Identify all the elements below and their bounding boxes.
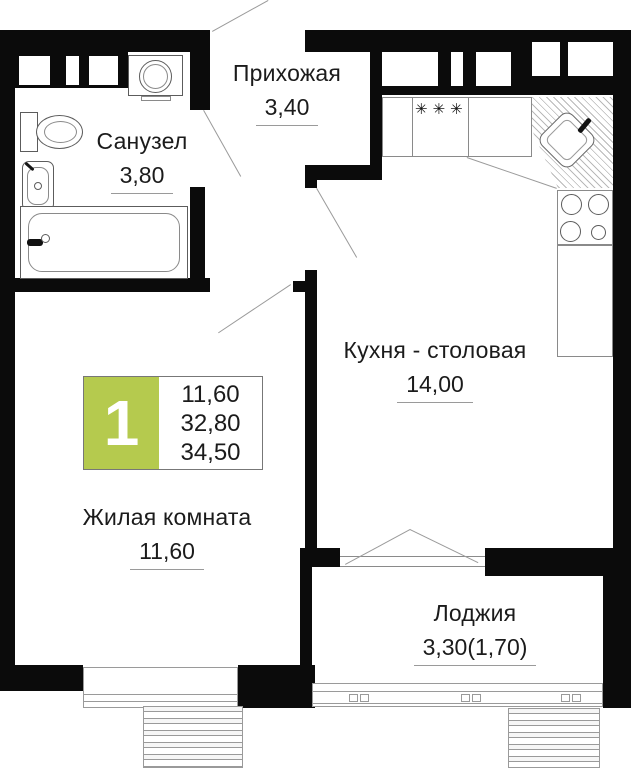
glazing-mullion — [472, 694, 481, 702]
living-room-window — [83, 667, 238, 708]
room-area: 3,80 — [111, 162, 174, 194]
stove-burner — [561, 194, 582, 215]
wall-kitchen-bottom-right — [485, 548, 603, 576]
facade-panel — [508, 708, 600, 768]
room-name: Жилая комната — [83, 504, 252, 531]
room-label-hallway: Прихожая 3,40 — [207, 60, 367, 126]
living-area-value: 11,60 — [181, 380, 239, 409]
glazing-mullion — [572, 694, 581, 702]
glazing-mullion — [360, 694, 369, 702]
glazing-line — [313, 703, 602, 704]
glazing-mullion — [349, 694, 358, 702]
glazing-line — [313, 691, 602, 692]
wall-top-hallway — [305, 30, 370, 52]
shaft-opening — [382, 52, 438, 86]
balcony-door-sill — [340, 556, 485, 567]
wall-living-kitchen — [305, 270, 317, 548]
room-label-bathroom: Санузел 3,80 — [62, 128, 222, 194]
wall-right-loggia — [603, 548, 631, 708]
apartment-badge: 1 11,60 32,80 34,50 — [83, 376, 263, 470]
room-area: 11,60 — [130, 538, 204, 570]
room-name: Кухня - столовая — [344, 337, 527, 364]
room-area: 3,40 — [256, 94, 319, 126]
entrance-door-swing — [212, 0, 268, 32]
wall-right — [613, 30, 631, 550]
stove-burner — [560, 221, 581, 242]
loggia-glazing — [312, 683, 603, 707]
glazing-mullion — [561, 694, 570, 702]
room-label-loggia: Лоджия 3,30(1,70) — [365, 600, 585, 666]
living-door-swing — [218, 284, 291, 333]
rooms-count: 1 — [84, 377, 159, 469]
wall-living-bottom-left — [0, 665, 83, 691]
wall-hallway-kitchen-corner — [305, 165, 382, 180]
room-name: Лоджия — [434, 600, 517, 627]
wall-stub-living-door — [293, 281, 305, 292]
wall-living-bottom-right — [238, 665, 315, 708]
shaft-opening — [66, 56, 79, 85]
kitchen-counter-right — [557, 245, 613, 357]
total-area-value: 34,50 — [180, 438, 240, 467]
shaft-opening — [19, 56, 50, 85]
glazing-mullion — [461, 694, 470, 702]
counter-divider — [468, 97, 469, 157]
counter-divider — [412, 97, 413, 157]
room-name: Прихожая — [233, 60, 341, 87]
area-values: 11,60 32,80 34,50 — [159, 377, 262, 469]
kitchen-corner-line — [467, 157, 557, 189]
bathtub-drain — [41, 234, 50, 243]
washing-machine-tray — [141, 96, 171, 101]
kitchen-opening-swing — [316, 188, 357, 258]
room-label-living: Жилая комната 11,60 — [62, 504, 272, 570]
window-glass-line — [84, 694, 237, 695]
wall-bathroom-right-lower — [190, 187, 205, 292]
bathtub-inner — [28, 213, 180, 272]
room-area: 14,00 — [397, 371, 473, 403]
hob-icon: ✳✳✳ — [415, 100, 468, 118]
stove-burner — [588, 194, 609, 215]
washing-machine-drum-inner — [143, 64, 168, 89]
wall-top-left — [0, 30, 210, 52]
room-name: Санузел — [97, 128, 188, 155]
area-without-loggia-value: 32,80 — [180, 409, 240, 438]
floor-plan: ✳✳✳ Прихожая 3,40 Санузел 3,80 Кухня - с… — [0, 0, 631, 768]
shaft-opening — [532, 42, 560, 76]
window-glass-line — [84, 701, 237, 702]
wall-stub-kitchen-door — [305, 180, 317, 188]
facade-panel — [143, 706, 243, 768]
wall-left — [0, 30, 15, 691]
bathroom-sink-drain — [34, 182, 42, 190]
wall-bathroom-bottom — [0, 278, 210, 292]
shaft-opening — [476, 52, 511, 86]
stove-burner — [591, 225, 606, 240]
shaft-opening — [89, 56, 118, 85]
shaft-opening — [451, 52, 463, 86]
room-label-kitchen: Кухня - столовая 14,00 — [325, 337, 545, 403]
room-area: 3,30(1,70) — [414, 634, 537, 666]
